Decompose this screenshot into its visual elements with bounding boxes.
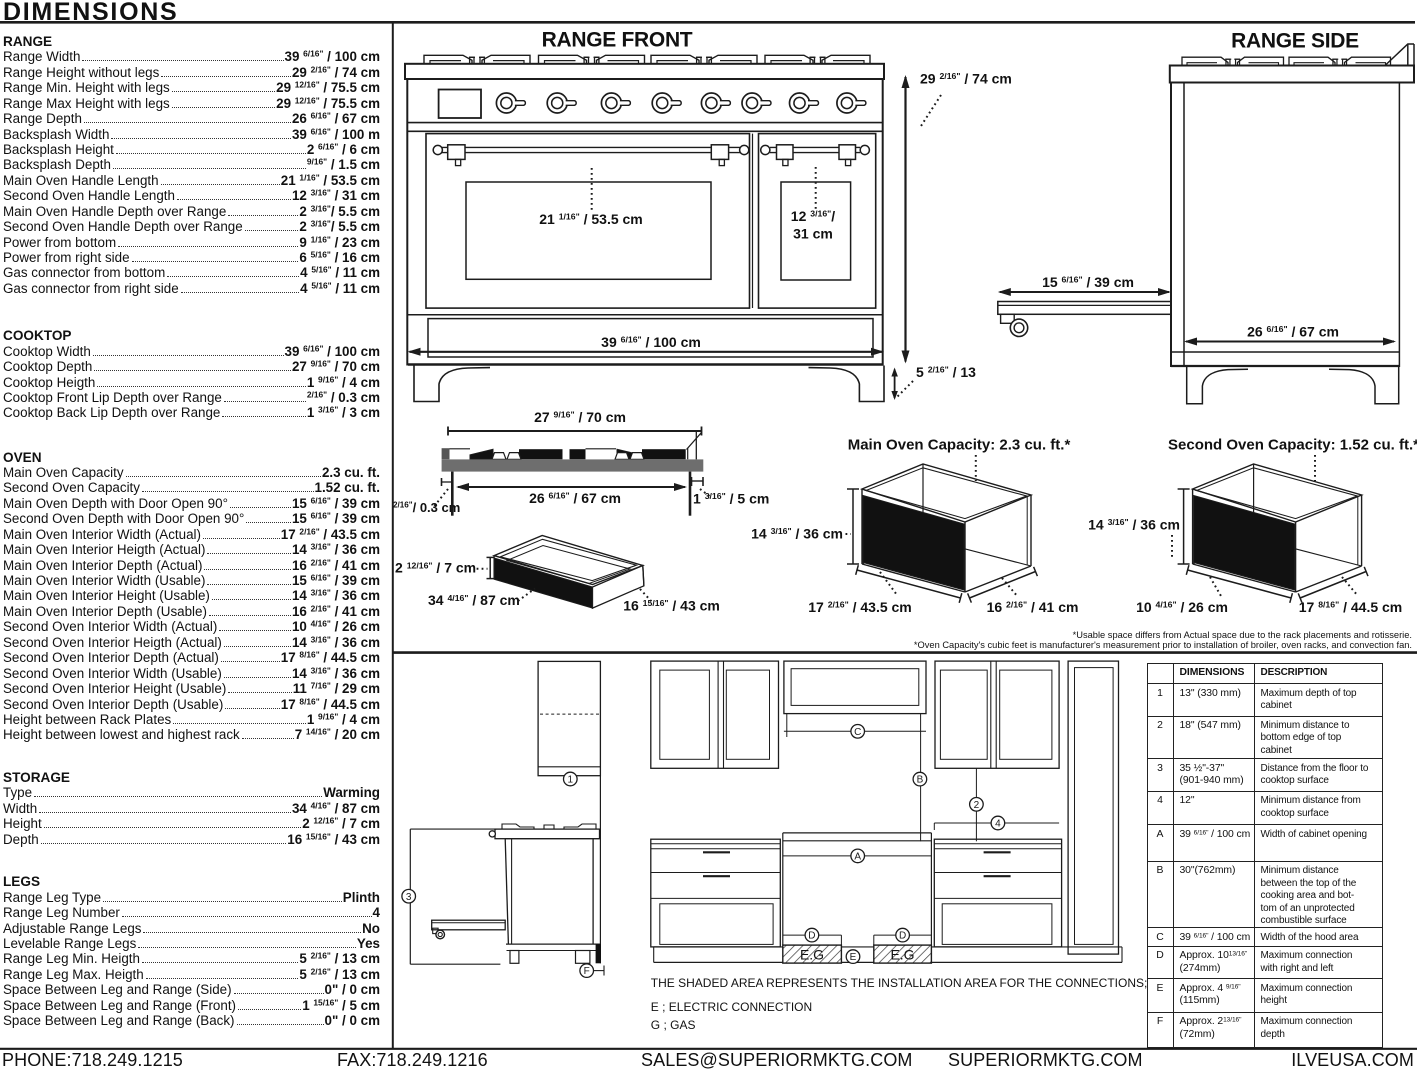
svg-text:E: E — [850, 952, 857, 963]
svg-text:31 cm: 31 cm — [793, 226, 833, 242]
svg-text:21 1/16" / 53.5 cm: 21 1/16" / 53.5 cm — [539, 211, 643, 227]
svg-text:A: A — [854, 852, 861, 863]
svg-text:C: C — [854, 727, 861, 738]
svg-text:29 2/16" / 74 cm: 29 2/16" / 74 cm — [920, 71, 1012, 87]
svg-text:D: D — [899, 931, 906, 942]
svg-text:10 4/16" / 26 cm: 10 4/16" / 26 cm — [1136, 599, 1228, 615]
svg-text:1: 1 — [568, 775, 574, 786]
svg-text:26 6/16" / 67 cm: 26 6/16" / 67 cm — [529, 490, 621, 506]
svg-text:Second Oven Capacity: 1.52 cu.: Second Oven Capacity: 1.52 cu. ft.* — [1168, 437, 1417, 454]
svg-text:27 9/16" / 70 cm: 27 9/16" / 70 cm — [534, 409, 626, 425]
svg-text:1 3/16" / 5 cm: 1 3/16" / 5 cm — [693, 491, 769, 507]
svg-text:14 3/16" / 36 cm: 14 3/16" / 36 cm — [1088, 517, 1180, 533]
svg-text:Main Oven Capacity: 2.3 cu. ft: Main Oven Capacity: 2.3 cu. ft.* — [848, 437, 1071, 454]
svg-text:F: F — [584, 966, 590, 977]
svg-text:26 6/16" / 67 cm: 26 6/16" / 67 cm — [1247, 324, 1339, 340]
svg-text:RANGE FRONT: RANGE FRONT — [542, 29, 693, 52]
svg-text:3: 3 — [406, 892, 412, 903]
svg-text:E.G: E.G — [800, 947, 824, 963]
svg-text:2 12/16" / 7 cm: 2 12/16" / 7 cm — [395, 560, 476, 576]
svg-text:2/16"/ 0.3 cm: 2/16"/ 0.3 cm — [393, 500, 460, 515]
svg-text:16 15/16" / 43 cm: 16 15/16" / 43 cm — [623, 597, 720, 613]
svg-text:5 2/16" / 13: 5 2/16" / 13 — [916, 364, 976, 380]
svg-text:E.G: E.G — [890, 947, 914, 963]
svg-text:12 3/16"/: 12 3/16"/ — [791, 208, 836, 224]
svg-text:14 3/16" / 36 cm: 14 3/16" / 36 cm — [751, 526, 843, 542]
svg-text:39 6/16" / 100 cm: 39 6/16" / 100 cm — [601, 334, 701, 350]
svg-text:34 4/16" / 87 cm: 34 4/16" / 87 cm — [428, 592, 520, 608]
svg-text:15 6/16" / 39 cm: 15 6/16" / 39 cm — [1042, 274, 1134, 290]
svg-text:16 2/16" / 41 cm: 16 2/16" / 41 cm — [987, 599, 1079, 615]
svg-text:RANGE SIDE: RANGE SIDE — [1231, 30, 1359, 53]
svg-text:D: D — [808, 931, 815, 942]
svg-text:4: 4 — [995, 819, 1001, 830]
svg-text:17 8/16" / 44.5 cm: 17 8/16" / 44.5 cm — [1299, 599, 1403, 615]
svg-text:17 2/16" / 43.5 cm: 17 2/16" / 43.5 cm — [808, 599, 912, 615]
svg-text:B: B — [917, 775, 924, 786]
svg-text:2: 2 — [974, 800, 980, 811]
